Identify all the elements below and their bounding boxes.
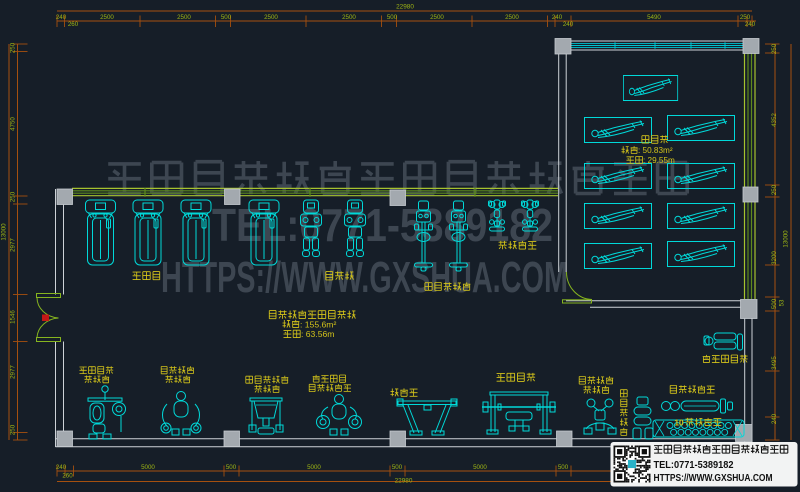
svg-text:4352: 4352	[771, 113, 778, 127]
svg-text:2500: 2500	[264, 14, 278, 21]
svg-text:250: 250	[10, 42, 17, 53]
svg-text:240: 240	[56, 14, 67, 21]
svg-text:250: 250	[771, 184, 778, 195]
svg-text:500: 500	[392, 464, 403, 471]
svg-text:: 29.55m: : 29.55m	[643, 156, 675, 165]
svg-text:HTTPS://WWW.GXSHUA.COM: HTTPS://WWW.GXSHUA.COM	[654, 473, 773, 484]
svg-text:2500: 2500	[430, 14, 444, 21]
svg-text:500: 500	[221, 14, 232, 21]
svg-text:500: 500	[771, 298, 778, 309]
svg-text:22980: 22980	[395, 477, 413, 484]
svg-text:: 155.6m²: : 155.6m²	[300, 319, 336, 329]
svg-text:2977: 2977	[10, 365, 17, 379]
svg-text:53: 53	[780, 299, 786, 306]
svg-text:240: 240	[563, 21, 574, 28]
svg-text:TEL:0771-5389182: TEL:0771-5389182	[212, 199, 553, 251]
svg-text:240: 240	[56, 464, 67, 471]
svg-text:500: 500	[226, 464, 237, 471]
svg-text:500: 500	[387, 14, 398, 21]
svg-text:3495: 3495	[771, 356, 778, 370]
svg-text:22980: 22980	[396, 4, 414, 11]
svg-text:1546: 1546	[10, 310, 17, 324]
svg-text:5490: 5490	[647, 14, 661, 21]
svg-text:2500: 2500	[177, 14, 191, 21]
svg-text:2500: 2500	[342, 14, 356, 21]
svg-text:13000: 13000	[1, 223, 8, 241]
svg-text:5000: 5000	[307, 464, 321, 471]
svg-text:HTTPS://WWW.GXSHUA.COM: HTTPS://WWW.GXSHUA.COM	[161, 253, 568, 302]
svg-text:500: 500	[558, 464, 569, 471]
svg-text:4750: 4750	[10, 117, 17, 131]
svg-text:13000: 13000	[783, 230, 790, 248]
svg-text:260: 260	[68, 21, 79, 28]
svg-text:2977: 2977	[10, 238, 17, 252]
svg-text:5000: 5000	[473, 464, 487, 471]
svg-text:240: 240	[771, 413, 778, 424]
svg-text:250: 250	[10, 424, 17, 435]
svg-text:250: 250	[10, 191, 17, 202]
svg-text:260: 260	[62, 473, 73, 480]
svg-text:240: 240	[552, 14, 563, 21]
svg-text:10: 10	[674, 418, 684, 428]
svg-text:2500: 2500	[100, 14, 114, 21]
svg-text:2500: 2500	[505, 14, 519, 21]
svg-text:TEL:0771-5389182: TEL:0771-5389182	[654, 459, 734, 471]
svg-text:250: 250	[771, 43, 778, 54]
svg-text:5000: 5000	[141, 464, 155, 471]
svg-text:: 50.83m²: : 50.83m²	[638, 146, 673, 155]
svg-text:3200: 3200	[771, 251, 778, 265]
svg-text:240: 240	[745, 21, 756, 28]
svg-text:: 63.56m: : 63.56m	[301, 329, 334, 339]
